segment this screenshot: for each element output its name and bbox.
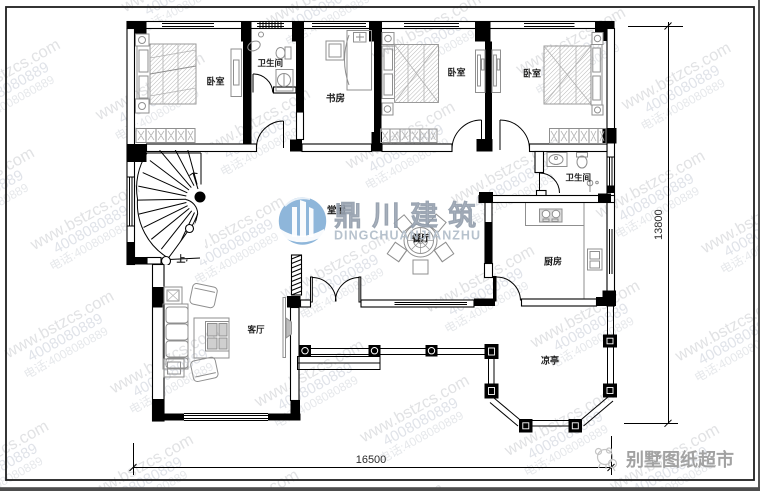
svg-text:卫生间: 卫生间: [258, 58, 284, 68]
svg-text:卫生间: 卫生间: [566, 173, 592, 183]
svg-text:凉亭: 凉亭: [541, 355, 559, 366]
svg-text:13800: 13800: [653, 209, 665, 240]
svg-text:DINGCHUANJIANZHU: DINGCHUANJIANZHU: [334, 229, 480, 243]
svg-text:厨房: 厨房: [544, 256, 562, 267]
svg-text:卧室: 卧室: [207, 76, 225, 87]
svg-text:客厅: 客厅: [247, 325, 266, 335]
svg-text:上: 上: [177, 253, 186, 264]
svg-text:卧室: 卧室: [523, 68, 541, 79]
svg-text:书房: 书房: [326, 93, 345, 105]
svg-text:别墅图纸超市: 别墅图纸超市: [625, 449, 734, 470]
svg-text:16500: 16500: [356, 454, 387, 466]
svg-text:卧室: 卧室: [448, 67, 466, 78]
